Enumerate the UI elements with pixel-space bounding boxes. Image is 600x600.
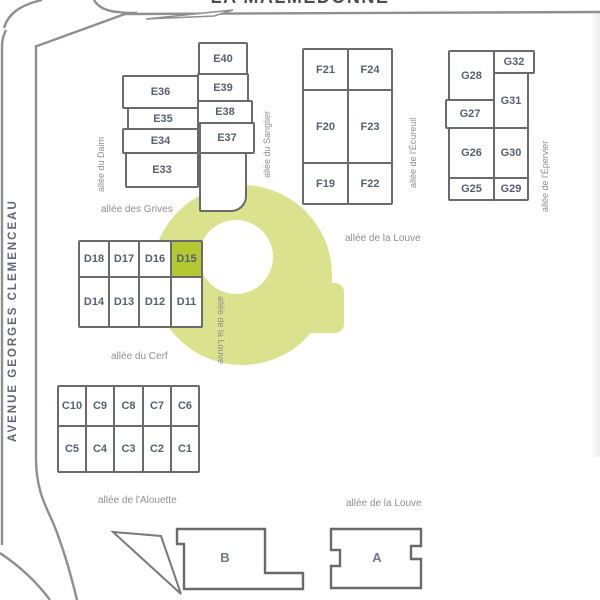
unit-d16[interactable]: D16 — [138, 240, 172, 278]
unit-e37[interactable]: E37 — [199, 122, 255, 154]
building-e-annex — [199, 152, 247, 212]
street-avenue-georges-clemenceau: AVENUE GEORGES CLEMENCEAU — [7, 132, 19, 442]
unit-d11[interactable]: D11 — [170, 276, 203, 328]
unit-g27[interactable]: G27 — [445, 99, 495, 129]
unit-e35[interactable]: E35 — [127, 107, 199, 130]
unit-d18[interactable]: D18 — [78, 240, 110, 278]
street-allee-de-l-ecureuil: allée de l'Écureuil — [408, 92, 418, 188]
page-title: LA MALMEDONNE — [0, 0, 600, 8]
unit-d13[interactable]: D13 — [108, 276, 140, 328]
unit-g28[interactable]: G28 — [448, 50, 495, 101]
street-allee-de-l-alouette: allée de l'Alouette — [98, 495, 177, 506]
unit-c3[interactable]: C3 — [113, 425, 144, 473]
street-allee-de-la-louve-bottom: allée de la Louve — [346, 498, 422, 509]
road-left-inner-edge — [36, 45, 77, 600]
unit-g25[interactable]: G25 — [448, 177, 495, 201]
unit-d14[interactable]: D14 — [78, 276, 110, 328]
unit-g32[interactable]: G32 — [493, 50, 535, 74]
unit-e40[interactable]: E40 — [198, 42, 248, 75]
unit-f19[interactable]: F19 — [302, 162, 349, 205]
unit-c5[interactable]: C5 — [57, 425, 87, 473]
unit-e38[interactable]: E38 — [197, 100, 253, 124]
building-b-label: B — [195, 550, 255, 565]
building-a-label: A — [337, 550, 417, 565]
street-allee-des-grives: allée des Grives — [101, 204, 173, 215]
unit-c4[interactable]: C4 — [85, 425, 115, 473]
street-allee-de-la-louve-d: allée de la Louve — [216, 296, 226, 391]
unit-f23[interactable]: F23 — [347, 89, 393, 164]
unit-c9[interactable]: C9 — [85, 385, 115, 427]
unit-e39[interactable]: E39 — [197, 73, 249, 102]
unit-c1[interactable]: C1 — [170, 425, 200, 473]
street-allee-de-l-epervier: allée de l'Épervier — [540, 92, 550, 212]
street-allee-du-cerf: allée du Cerf — [111, 351, 168, 362]
roundabout-arc-bottom — [0, 553, 50, 600]
unit-e34[interactable]: E34 — [122, 128, 199, 154]
street-allee-de-la-louve-f: allée de la Louve — [345, 233, 421, 244]
street-allee-du-daim: allée du Daim — [96, 112, 106, 192]
unit-g30[interactable]: G30 — [493, 127, 529, 179]
unit-f21[interactable]: F21 — [302, 48, 349, 91]
unit-c7[interactable]: C7 — [142, 385, 172, 427]
site-map: LA MALMEDONNE E36 E35 E34 E33 E4 — [0, 0, 600, 600]
unit-f22[interactable]: F22 — [347, 162, 393, 205]
unit-d12[interactable]: D12 — [138, 276, 172, 328]
unit-f24[interactable]: F24 — [347, 48, 393, 91]
street-allee-du-sanglier: allée du Sanglier — [262, 86, 272, 178]
unit-c8[interactable]: C8 — [113, 385, 144, 427]
road-top-connector — [37, 14, 125, 46]
unit-c10[interactable]: C10 — [57, 385, 87, 427]
unit-d15-highlighted[interactable]: D15 — [170, 240, 203, 278]
unit-g26[interactable]: G26 — [448, 127, 495, 179]
unit-d17[interactable]: D17 — [108, 240, 140, 278]
unit-e36[interactable]: E36 — [122, 75, 199, 109]
unit-e33[interactable]: E33 — [125, 152, 199, 188]
unit-g31[interactable]: G31 — [493, 72, 529, 129]
traffic-island-bottom — [113, 532, 181, 594]
unit-f20[interactable]: F20 — [302, 89, 349, 164]
unit-c6[interactable]: C6 — [170, 385, 200, 427]
unit-g29[interactable]: G29 — [493, 177, 529, 201]
unit-c2[interactable]: C2 — [142, 425, 172, 473]
road-left-outer-edge — [2, 30, 6, 545]
